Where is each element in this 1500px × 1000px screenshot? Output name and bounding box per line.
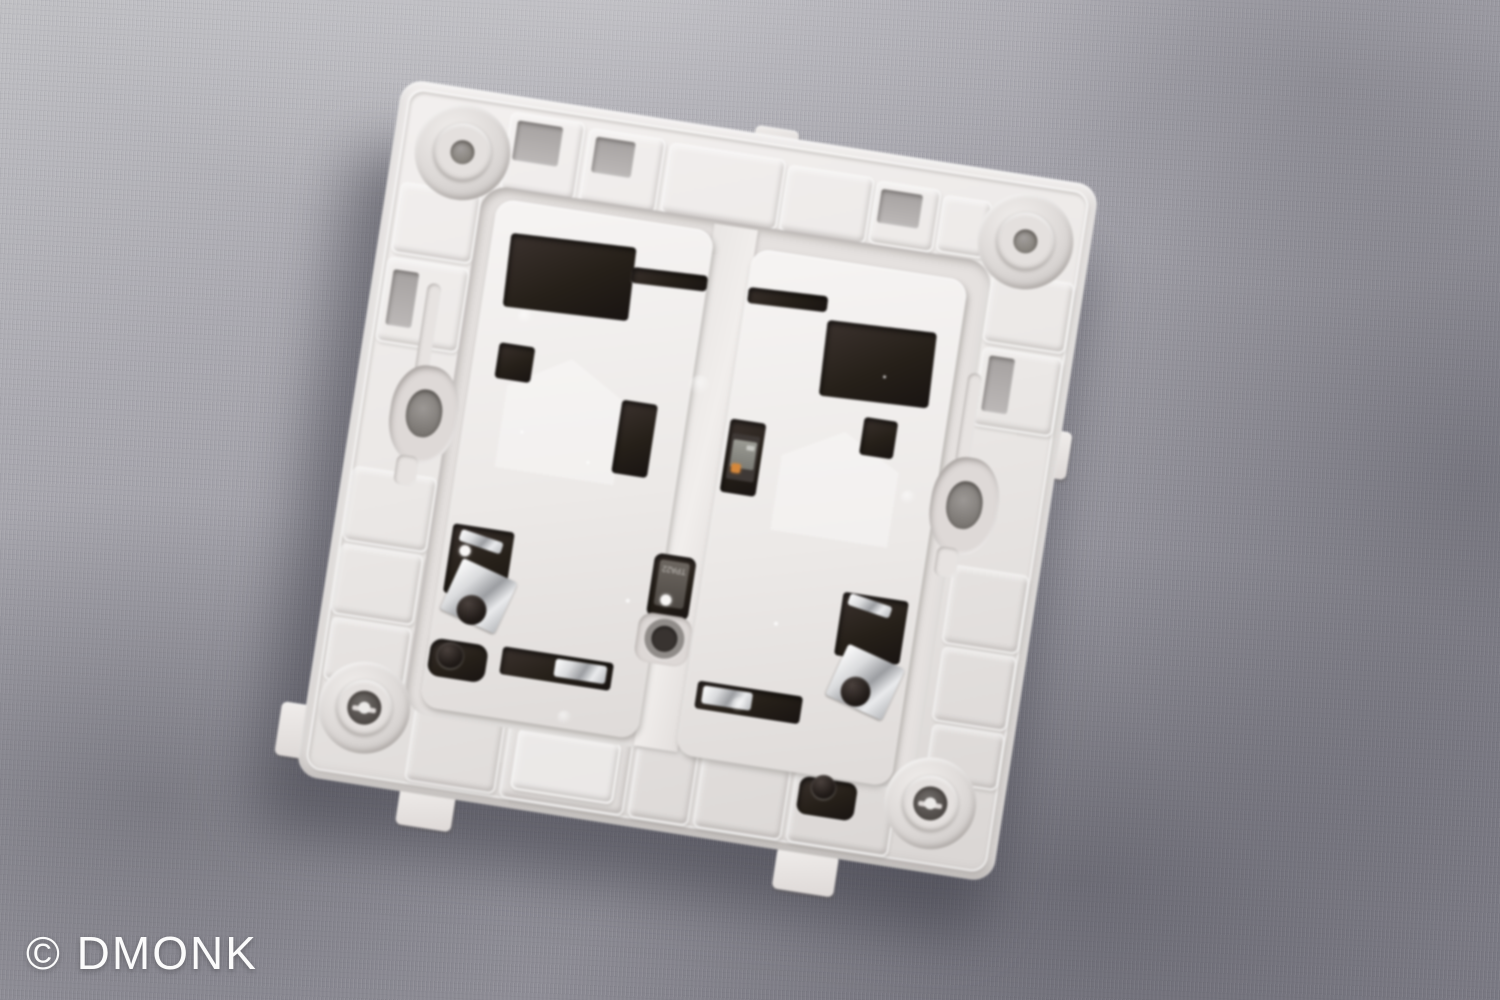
switch-plate-back: TPA22 [295, 78, 1100, 883]
pcb-pad [746, 445, 755, 451]
watermark: © DMONK [26, 926, 258, 980]
component-marking: TPA22 [659, 563, 690, 576]
opening-right-top [819, 320, 937, 408]
opening-left-top [503, 233, 637, 321]
rib-compartment [330, 542, 424, 626]
vent-slot [512, 120, 564, 167]
screw-hole-pin [357, 701, 371, 715]
opening-right-square [859, 417, 898, 460]
rib-compartment [342, 465, 439, 553]
rib-compartment [931, 645, 1018, 732]
rib-compartment [941, 564, 1030, 655]
photo-scene: TPA22 © DMONK [0, 0, 1500, 1000]
led-component [731, 463, 741, 473]
vent-slot [591, 136, 636, 178]
vent-slot [877, 189, 924, 229]
screw-hole-pin [923, 797, 937, 811]
opening-left-square [494, 342, 535, 383]
